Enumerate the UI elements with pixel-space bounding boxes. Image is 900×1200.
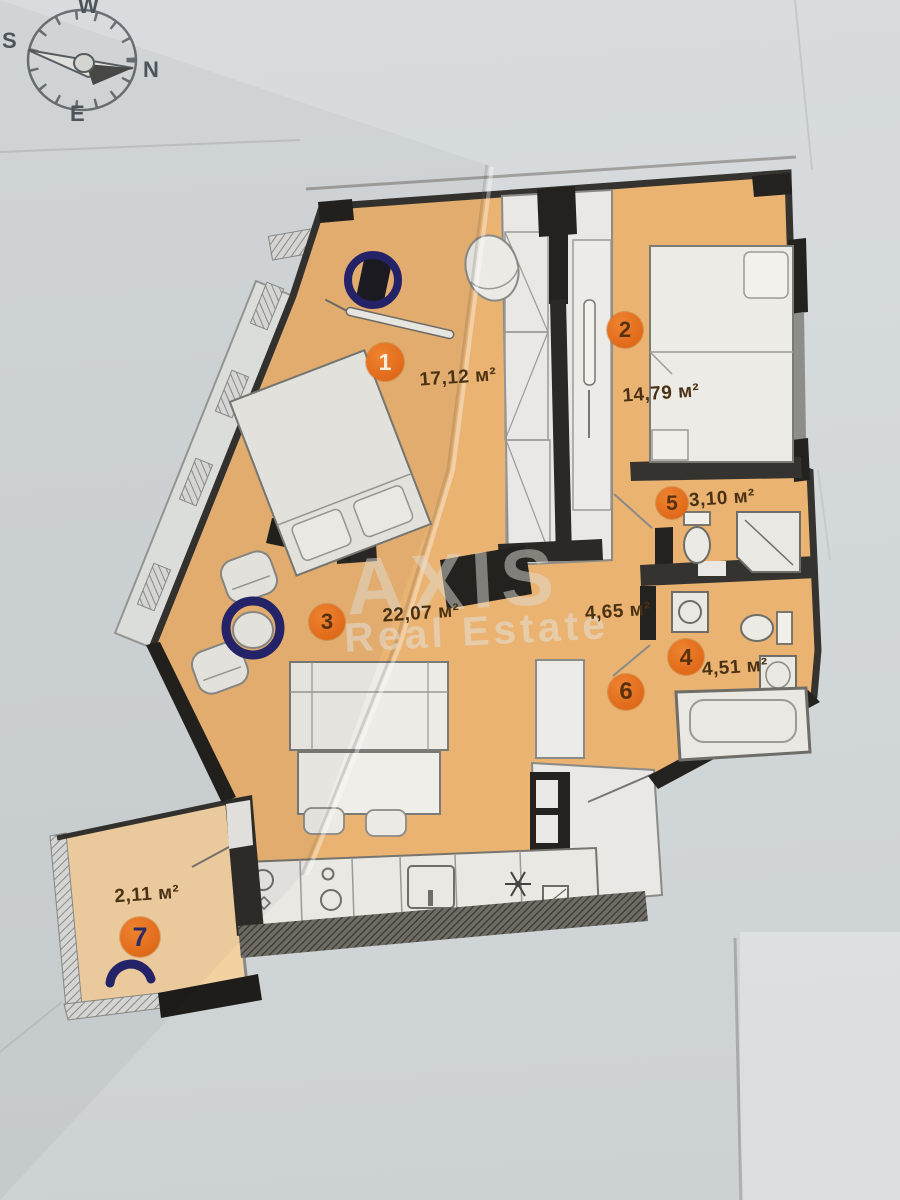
compass-label-south: S xyxy=(2,28,17,54)
compass-label-east: E xyxy=(70,101,85,127)
toilet xyxy=(741,615,773,641)
room-5-badge: 5 xyxy=(656,487,688,519)
room-7-badge: 7 xyxy=(120,917,160,957)
pen-symbol xyxy=(584,300,595,385)
compass-label-north: N xyxy=(143,57,159,83)
furniture-room-2 xyxy=(650,246,793,462)
room-3-badge: 3 xyxy=(309,604,345,640)
room-5-area-label: 3,10 м² xyxy=(688,486,756,513)
hall-wardrobe xyxy=(536,660,584,758)
chair xyxy=(366,810,406,836)
washing-machine xyxy=(672,592,708,632)
room-2-badge: 2 xyxy=(607,312,643,348)
room-4-area-label: 4,51 м² xyxy=(701,655,769,682)
room-7-area-label: 2,11 м² xyxy=(114,882,180,908)
room-1-badge: 1 xyxy=(366,343,404,381)
room-6-badge: 6 xyxy=(608,674,644,710)
fixtures-room-5 xyxy=(684,512,800,572)
floor-plan-photo: W S N E AXIS Real Estate 1 2 3 4 5 6 7 1… xyxy=(0,0,900,1200)
nightstand xyxy=(652,430,688,460)
room-6-area-label: 4,65 м² xyxy=(584,599,652,626)
toilet xyxy=(684,527,710,563)
compass-label-west: W xyxy=(78,0,99,19)
room-4-badge: 4 xyxy=(668,639,704,675)
bathtub xyxy=(676,688,810,760)
